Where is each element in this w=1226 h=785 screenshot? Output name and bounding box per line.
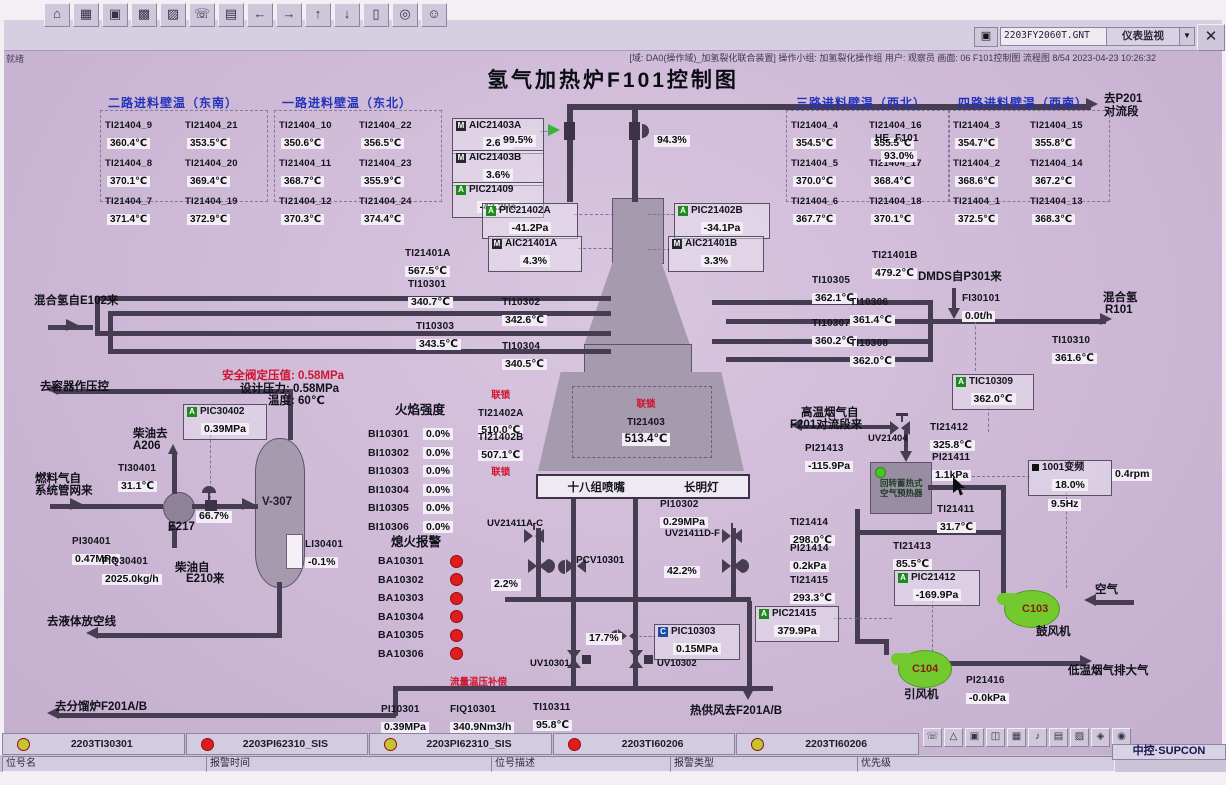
toolbar-icon[interactable]: ↑ xyxy=(305,3,331,27)
tray-icon[interactable]: ◫ xyxy=(986,728,1005,747)
pipe xyxy=(928,300,933,362)
toolbar-icon[interactable]: ▯ xyxy=(363,3,389,27)
fan-c104-tag: C104 xyxy=(912,663,938,675)
tray-icon[interactable]: ♪ xyxy=(1028,728,1047,747)
hot-flue-label-2: F201对流段来 xyxy=(790,419,862,432)
to-vent-label: 去液体放空线 xyxy=(47,616,116,629)
to-fractionator-label: 去分馏炉F201A/B xyxy=(55,701,147,714)
tray-icon[interactable]: △ xyxy=(944,728,963,747)
damper-valve[interactable] xyxy=(564,122,575,140)
tag-TI21403[interactable]: 联锁TI21403513.4℃ xyxy=(616,394,676,447)
pipe xyxy=(277,582,282,636)
signal-line xyxy=(932,600,933,652)
pipe xyxy=(1001,485,1006,595)
alarm-priority-dot xyxy=(201,738,214,751)
temp-tag[interactable]: TI21404_2368.6℃ xyxy=(953,153,1028,188)
temp-tag[interactable]: TI21404_12370.3℃ xyxy=(279,191,357,226)
tray-icon[interactable]: ▦ xyxy=(1007,728,1026,747)
flameout-alarm-row[interactable]: BA10303 xyxy=(378,589,463,608)
to-p201-label-1: 去P201 xyxy=(1104,93,1142,106)
footer-field-description: 位号描述 xyxy=(491,756,675,772)
tray-icon[interactable]: ▤ xyxy=(1049,728,1068,747)
r101-label: R101 xyxy=(1105,304,1133,317)
a206-label: A206 xyxy=(133,440,161,453)
flame-intensity-row[interactable]: BI103010.0% xyxy=(368,424,453,443)
alarm-tag-name: 2203PI62310_SIS xyxy=(407,738,551,750)
e210-label: E210来 xyxy=(186,573,224,586)
tag-valve-output-17-7[interactable]: 17.7% xyxy=(586,628,622,646)
temp-tag[interactable]: TI21404_20369.4℃ xyxy=(185,153,263,188)
valve-body xyxy=(644,655,653,664)
fuel-gas-label-2: 系统管网来 xyxy=(35,485,93,498)
signal-line xyxy=(648,214,674,215)
level-gauge xyxy=(286,534,303,569)
alarm-tag-name: 2203TI60206 xyxy=(591,738,735,750)
footer-field-alarmtype: 报警类型 xyxy=(670,756,862,772)
page-title: 氢气加热炉F101控制图 xyxy=(487,64,739,94)
air-label: 空气 xyxy=(1095,584,1118,597)
group-title-pass1: 一路进料壁温（东北） xyxy=(282,94,412,111)
e217-label: E217 xyxy=(168,521,195,534)
flow-arrow xyxy=(742,689,754,700)
tag-HE_F101[interactable]: HE_F10193.0% xyxy=(875,128,919,163)
blower-c103-tag: C103 xyxy=(1022,603,1048,615)
flow-arrow xyxy=(242,498,254,510)
flame-intensity-label: 火焰强度 xyxy=(395,403,445,417)
temp-tag[interactable]: TI21404_7371.4℃ xyxy=(105,191,183,226)
temp-tag[interactable]: TI21404_24374.4℃ xyxy=(359,191,437,226)
temp-tag[interactable]: TI21404_18370.1℃ xyxy=(869,191,945,226)
flameout-alarm-label: 熄火报警 xyxy=(391,535,441,549)
tag-PI21413[interactable]: PI21413-115.9Pa xyxy=(805,438,853,473)
alarm-dot-icon xyxy=(450,610,463,623)
pipe xyxy=(726,357,932,362)
pipe xyxy=(884,639,889,655)
toolbar-icon[interactable]: ▩ xyxy=(131,3,157,27)
flame-intensity-row[interactable]: BI103060.0% xyxy=(368,517,453,536)
flameout-alarm-row[interactable]: BA10301 xyxy=(378,552,463,571)
vfd-square-icon xyxy=(1032,464,1039,471)
alarm-tag-name: 2203TI30301 xyxy=(40,738,184,750)
signal-line xyxy=(975,316,976,371)
signal-line xyxy=(834,618,892,619)
alarm-dot-icon xyxy=(450,647,463,660)
pilot-lamp-label: 长明灯 xyxy=(684,479,719,495)
group-title-pass3: 三路进料壁温（西北） xyxy=(796,94,926,111)
cold-flue-label: 低温烟气排大气 xyxy=(1068,665,1149,678)
tag-TIC10309[interactable]: ATIC10309 362.0℃ xyxy=(952,374,1034,410)
tag-TI10303[interactable]: TI10303343.5℃ xyxy=(416,316,461,351)
tag-TI10310[interactable]: TI10310361.6℃ xyxy=(1052,330,1097,365)
flame-intensity-row[interactable]: BI103030.0% xyxy=(368,461,453,480)
tag-damper-b-output[interactable]: 94.3% xyxy=(654,130,690,148)
tag-FIQ30401[interactable]: FIQ304012025.0kg/h xyxy=(102,551,162,586)
tag-TI10301[interactable]: TI10301340.7℃ xyxy=(408,274,453,309)
tag-vfd-rpm[interactable]: 0.4rpm xyxy=(1112,464,1152,482)
tag-1001-vfd[interactable]: 1001变频 18.0% xyxy=(1028,460,1112,496)
preheater-run-indicator xyxy=(875,467,886,478)
temp-tag[interactable]: TI21404_5370.0℃ xyxy=(791,153,867,188)
to-vessel-label: 去容器作压控 xyxy=(40,381,109,394)
dcs-screen: ⌂▦▣▩▨☏▤←→↑↓▯◎☺ ▣ 2203FY2060T.GNT 仪表监视 ▼ … xyxy=(0,0,1226,785)
alarm-dot-icon xyxy=(450,592,463,605)
tag-PI10301[interactable]: PI103010.39MPa xyxy=(381,699,429,734)
damper-open-icon[interactable] xyxy=(548,124,560,136)
pipe xyxy=(505,597,751,602)
tag-TI30401[interactable]: TI3040131.1℃ xyxy=(118,458,157,493)
temp-tag[interactable]: TI21404_13368.3℃ xyxy=(1030,191,1105,226)
flow-arrow xyxy=(948,308,960,319)
alarm-priority-dot xyxy=(17,738,30,751)
flame-intensity-row[interactable]: BI103040.0% xyxy=(368,480,453,499)
to-p201-label-2: 对流段 xyxy=(1104,106,1139,119)
toolbar-icon[interactable]: ▣ xyxy=(102,3,128,27)
tag-PCV10301-label: PCV10301 xyxy=(576,555,624,567)
tag-UV10302-label: UV10302 xyxy=(657,659,697,670)
toolbar-icon[interactable]: ◎ xyxy=(392,3,418,27)
signal-line xyxy=(574,214,614,215)
temp-tag[interactable]: TI21404_10350.6℃ xyxy=(279,115,357,150)
tag-FIQ10301[interactable]: FIQ10301340.9Nm3/h xyxy=(450,699,514,734)
alarm-banner-cell[interactable]: 2203TI30301 xyxy=(2,733,185,755)
toolbar-icon[interactable]: ▤ xyxy=(218,3,244,27)
burner-strip: 十八组喷嘴 长明灯 xyxy=(536,474,750,499)
tray-icon[interactable]: ☏ xyxy=(923,728,942,747)
alarm-priority-dot xyxy=(568,738,581,751)
temp-tag[interactable]: TI21404_6367.7℃ xyxy=(791,191,867,226)
tag-AIC21401B[interactable]: MAIC21401B 3.3% xyxy=(668,236,764,272)
tag-PIC21402B[interactable]: APIC21402B -34.1Pa xyxy=(674,203,770,239)
alarm-banner-cell[interactable]: 2203PI62310_SIS xyxy=(186,733,369,755)
pipe xyxy=(857,530,1005,535)
blower-label: 鼓风机 xyxy=(1036,626,1071,639)
flow-arrow xyxy=(70,498,82,510)
toolbar-icon[interactable]: ▦ xyxy=(73,3,99,27)
alarm-banner: 2203TI30301 2203PI62310_SIS 2203PI62310_… xyxy=(2,733,920,755)
temp-tag[interactable]: TI21404_8370.1℃ xyxy=(105,153,183,188)
flame-intensity-list: BI103010.0%BI103020.0%BI103030.0%BI10304… xyxy=(368,424,453,535)
tag-LI30401[interactable]: LI30401-0.1% xyxy=(305,534,343,569)
tray-icon[interactable]: ◈ xyxy=(1091,728,1110,747)
view-mode-select[interactable]: 仪表监视 xyxy=(1106,27,1180,46)
fan-label: 引风机 xyxy=(904,689,939,702)
pipe xyxy=(946,661,1086,666)
tag-TI21401B[interactable]: TI21401B479.2℃ xyxy=(872,245,918,280)
temp-tag[interactable]: TI21404_4354.5℃ xyxy=(791,115,867,150)
tag-TI10302[interactable]: TI10302342.6℃ xyxy=(502,292,547,327)
tray-icon[interactable]: ▨ xyxy=(1070,728,1089,747)
alarm-tag-name: 2203TI60206 xyxy=(774,738,918,750)
tag-TI10304[interactable]: TI10304340.5℃ xyxy=(502,336,547,371)
footer-field-priority: 优先级 xyxy=(857,756,1115,772)
flameout-alarm-row[interactable]: BA10306 xyxy=(378,645,463,664)
screen-select-icon[interactable]: ▣ xyxy=(974,27,998,47)
tag-PIC30402[interactable]: APIC30402 0.39MPa xyxy=(183,404,267,440)
footer-field-alarmtime: 报警时间 xyxy=(206,756,496,772)
pipe xyxy=(928,319,1106,324)
pipe xyxy=(108,311,113,354)
footer-field-tagname: 位号名 xyxy=(2,756,210,772)
tag-TI21401A[interactable]: TI21401A567.5℃ xyxy=(405,243,451,278)
toolbar-icon[interactable]: ← xyxy=(247,3,273,27)
tag-PIC21415[interactable]: APIC21415 379.9Pa xyxy=(755,606,839,642)
alarm-dot-icon xyxy=(450,573,463,586)
design-temp-label: 温度: 60℃ xyxy=(268,395,325,408)
alarm-priority-dot xyxy=(751,738,764,751)
safety-valve-set-label: 安全阀定压值: 0.58MPa xyxy=(222,370,344,383)
temp-tag[interactable]: TI21404_23355.9℃ xyxy=(359,153,437,188)
tag-FI30101[interactable]: FI301010.0t/h xyxy=(962,288,1000,323)
valve-body xyxy=(582,655,591,664)
furnace-stack xyxy=(612,198,664,264)
temp-tag[interactable]: TI21404_19372.9℃ xyxy=(185,191,263,226)
h2-inlet-label: 混合氢自E102来 xyxy=(34,295,118,308)
mouse-cursor xyxy=(953,477,966,496)
tag-valve-output-42-2[interactable]: 42.2% xyxy=(664,561,700,579)
tag-PIC21412[interactable]: APIC21412 -169.9Pa xyxy=(894,570,980,606)
wall-temp-group-pass1: TI21404_10350.6℃TI21404_22356.5℃TI21404_… xyxy=(274,110,442,202)
pipe xyxy=(928,485,1006,490)
uv21411ac-valve[interactable] xyxy=(524,529,544,543)
alarm-banner-cell[interactable]: 2203TI60206 xyxy=(553,733,736,755)
temp-tag[interactable]: TI21404_14367.2℃ xyxy=(1030,153,1105,188)
tag-PIC10303[interactable]: CPIC10303 0.15MPa xyxy=(654,624,740,660)
supcon-logo: 中控·SUPCON xyxy=(1112,744,1226,760)
temp-tag[interactable]: TI21404_11368.7℃ xyxy=(279,153,357,188)
uv10302-valve[interactable] xyxy=(629,650,643,668)
alarm-dot-icon xyxy=(450,555,463,568)
tray-icon[interactable]: ▣ xyxy=(965,728,984,747)
tag-UV10301-label: UV10301 xyxy=(530,659,570,670)
compensation-label: 流量温压补偿 xyxy=(450,678,507,689)
alarm-banner-cell[interactable]: 2203PI62310_SIS xyxy=(369,733,552,755)
toolbar-icon[interactable]: ☺ xyxy=(421,3,447,27)
control-valve[interactable] xyxy=(722,559,742,573)
control-valve[interactable] xyxy=(528,559,548,573)
wall-temp-group-pass3: TI21404_4354.5℃TI21404_16355.5℃TI21404_5… xyxy=(786,110,950,202)
wall-temp-group-pass2: TI21404_9360.4℃TI21404_21353.5℃TI21404_8… xyxy=(100,110,268,202)
tag-PIC21402A[interactable]: APIC21402A -41.2Pa xyxy=(482,203,578,239)
tag-UV21411D-F-label: UV21411D-F xyxy=(665,529,720,540)
preheater-label: 回转蓄热式空气预热器 xyxy=(880,479,923,499)
uv21411df-valve[interactable] xyxy=(722,529,742,543)
tag-PI21414[interactable]: PI214140.2kPa xyxy=(790,538,829,573)
exchanger-e217[interactable] xyxy=(163,492,195,524)
dmds-label: DMDS自P301来 xyxy=(918,271,1002,284)
tag-TI10308[interactable]: TI10308362.0℃ xyxy=(850,333,895,368)
pipe xyxy=(172,452,177,494)
tag-TI21415[interactable]: TI21415293.3℃ xyxy=(790,570,835,605)
toolbar-icon[interactable]: → xyxy=(276,3,302,27)
tag-e217-output[interactable]: 66.7% xyxy=(196,506,232,524)
temp-tag[interactable]: TI21404_21353.5℃ xyxy=(185,115,263,150)
pipe xyxy=(747,601,752,691)
temp-tag[interactable]: TI21404_3354.7℃ xyxy=(953,115,1028,150)
tag-valve-output-2-2[interactable]: 2.2% xyxy=(491,574,521,592)
tag-AIC21401A[interactable]: MAIC21401A 4.3% xyxy=(488,236,582,272)
alarm-tool-tray: ☏△▣◫▦♪▤▨◈◉ xyxy=(923,728,1131,747)
tag-TI21402B[interactable]: TI21402B507.1℃联锁 xyxy=(478,427,524,480)
pipe xyxy=(97,633,282,638)
tag-damper-a-output[interactable]: 99.5% xyxy=(500,130,536,148)
group-title-pass4: 四路进料壁温（西南） xyxy=(958,94,1088,111)
temp-tag[interactable]: TI21404_1372.5℃ xyxy=(953,191,1028,226)
flow-arrow xyxy=(66,319,78,331)
pipe xyxy=(855,509,860,641)
session-status-bar: [域: DA0(操作域)_加氢裂化联合装置] 操作小组: 加氢裂化操作组 用户:… xyxy=(4,51,1222,63)
hot-air-label: 热供风去F201A/B xyxy=(690,705,782,718)
flameout-alarm-row[interactable]: BA10302 xyxy=(378,571,463,590)
toolbar-icon[interactable]: ⌂ xyxy=(44,3,70,27)
tag-PI10302[interactable]: PI103020.29MPa xyxy=(660,494,708,529)
tag-TI21413[interactable]: TI2141385.5℃ xyxy=(893,536,932,571)
tag-TI10311[interactable]: TI1031195.8℃ xyxy=(533,697,572,732)
view-mode-dropdown-icon[interactable]: ▼ xyxy=(1179,27,1195,46)
temp-tag[interactable]: TI21404_9360.4℃ xyxy=(105,115,183,150)
damper-valve[interactable] xyxy=(629,122,640,140)
flame-intensity-row[interactable]: BI103020.0% xyxy=(368,443,453,462)
tag-UV21404-label: UV21404 xyxy=(868,434,908,445)
signal-line xyxy=(578,248,612,249)
tag-AIC21403B[interactable]: MAIC21403B 3.6% xyxy=(452,150,544,186)
alarm-priority-dot xyxy=(384,738,397,751)
close-button[interactable]: ✕ xyxy=(1197,24,1225,51)
temp-tag[interactable]: TI21404_15355.8℃ xyxy=(1030,115,1105,150)
tag-TI21411[interactable]: TI2141131.7℃ xyxy=(937,499,976,534)
graphic-file-field[interactable]: 2203FY2060T.GNT xyxy=(1000,27,1107,46)
pipe xyxy=(1096,600,1134,605)
flameout-alarm-row[interactable]: BA10304 xyxy=(378,608,463,627)
tag-UV21411A-C-label: UV21411A-C xyxy=(487,519,543,530)
v307-label: V-307 xyxy=(262,496,292,509)
flame-intensity-row[interactable]: BI103050.0% xyxy=(368,498,453,517)
signal-line xyxy=(648,249,670,250)
alarm-dot-icon xyxy=(450,629,463,642)
alarm-banner-cell[interactable]: 2203TI60206 xyxy=(736,733,919,755)
valve-actuator-icon xyxy=(558,560,565,574)
tag-vfd-hz[interactable]: 9.5Hz xyxy=(1048,494,1081,512)
burner-count-label: 十八组喷嘴 xyxy=(568,479,626,495)
flow-arrow xyxy=(168,444,178,454)
alarm-tag-name: 2203PI62310_SIS xyxy=(224,738,368,750)
tag-PI21416[interactable]: PI21416-0.0kPa xyxy=(966,670,1009,705)
flow-arrow xyxy=(900,451,912,462)
flameout-alarm-row[interactable]: BA10305 xyxy=(378,626,463,645)
temp-tag[interactable]: TI21404_22356.5℃ xyxy=(359,115,437,150)
toolbar-icon[interactable]: ☏ xyxy=(189,3,215,27)
control-valve-icon[interactable] xyxy=(202,486,216,493)
pipe xyxy=(50,504,163,509)
toolbar-icon[interactable]: ↓ xyxy=(334,3,360,27)
flameout-alarm-list: BA10301BA10302BA10303BA10304BA10305BA103… xyxy=(378,552,463,663)
wall-temp-group-pass4: TI21404_3354.7℃TI21404_15355.8℃TI21404_2… xyxy=(948,110,1110,202)
toolbar-buttons: ⌂▦▣▩▨☏▤←→↑↓▯◎☺ xyxy=(44,3,447,27)
group-title-pass2: 二路进料壁温（东南） xyxy=(108,94,238,111)
toolbar-icon[interactable]: ▨ xyxy=(160,3,186,27)
